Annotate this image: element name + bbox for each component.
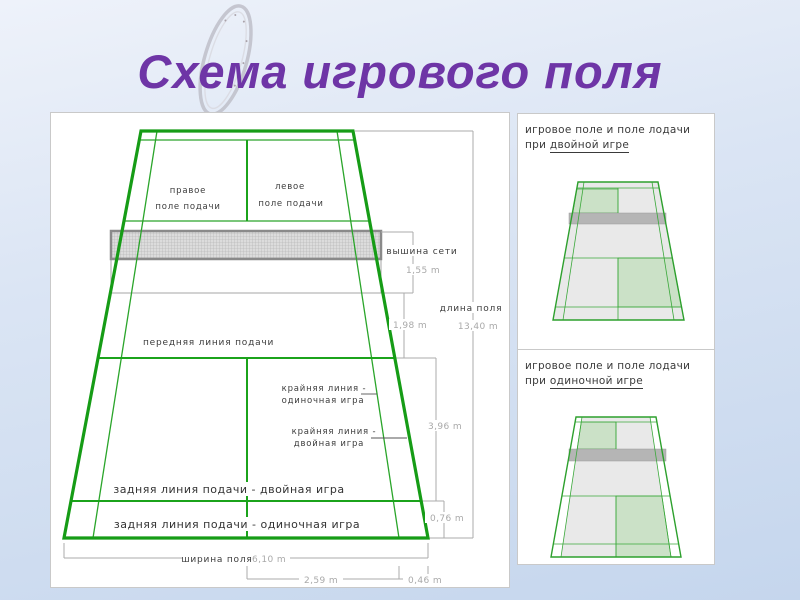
- slide-title: Схема игрового поля: [0, 44, 800, 99]
- label-field-width: ширина поля: [181, 555, 252, 565]
- label-field-length: длина поля: [440, 304, 503, 314]
- side-panel: игровое поле и поле лодачи при двойной и…: [517, 113, 715, 565]
- label-front-service-line: передняя линия подачи: [143, 338, 274, 348]
- slide: Схема игрового поля: [0, 0, 800, 600]
- badminton-court-diagram: правое поле подачи левое поле подачи пер…: [51, 113, 509, 587]
- doubles-court-mini-diagram: [518, 153, 714, 343]
- court-lines: [64, 131, 428, 538]
- label-singles-side-line-1: крайняя линия -: [282, 384, 367, 394]
- label-doubles-side-line-1: крайняя линия -: [292, 427, 377, 437]
- doubles-panel: игровое поле и поле лодачи при двойной и…: [517, 113, 715, 350]
- label-net-height: вышина сети: [386, 247, 457, 257]
- doubles-title-underlined: двойной игре: [550, 139, 629, 153]
- singles-court-mini-diagram: [518, 389, 714, 561]
- value-net-to-front: 1,98 m: [393, 321, 427, 331]
- singles-title-prefix: при: [525, 375, 550, 387]
- label-left-service-court-1: левое: [275, 182, 305, 192]
- doubles-title-line1: игровое поле и поле лодачи: [525, 124, 690, 136]
- main-diagram-panel: правое поле подачи левое поле подачи пер…: [50, 112, 510, 588]
- value-singles-inset: 0,46 m: [408, 576, 442, 586]
- dimension-labels: вышина сети 1,55 m 1,98 m длина поля 13,…: [181, 247, 502, 586]
- doubles-panel-title: игровое поле и поле лодачи при двойной и…: [518, 114, 714, 153]
- value-field-width: 6,10 m: [252, 555, 286, 565]
- net-frame: [111, 259, 381, 293]
- singles-panel: игровое поле и поле лодачи при одиночной…: [517, 349, 715, 565]
- value-half-width: 2,59 m: [304, 576, 338, 586]
- label-back-line-doubles: задняя линия подачи - двойная игра: [113, 483, 344, 496]
- label-doubles-side-line-2: двойная игра: [294, 439, 364, 449]
- label-singles-side-line-2: одиночная игра: [282, 396, 365, 406]
- mini-singles-near-service-box: [616, 496, 671, 557]
- mini-singles-far-service-box: [577, 422, 616, 449]
- mini-doubles-near-service-box: [618, 258, 682, 307]
- mini-singles-net: [569, 449, 666, 461]
- value-back-strip: 0,76 m: [430, 514, 464, 524]
- label-right-service-court-1: правое: [170, 186, 206, 196]
- doubles-title-prefix: при: [525, 139, 550, 151]
- net-band: [111, 231, 381, 259]
- mini-doubles-net: [569, 213, 666, 224]
- value-net-height: 1,55 m: [406, 266, 440, 276]
- label-back-line-singles: задняя линия подачи - одиночная игра: [114, 518, 360, 531]
- singles-panel-title: игровое поле и поле лодачи при одиночной…: [518, 350, 714, 389]
- label-right-service-court-2: поле подачи: [155, 202, 220, 212]
- singles-title-underlined: одиночной игре: [550, 375, 643, 389]
- label-backgrounds: [113, 245, 501, 586]
- label-left-service-court-2: поле подачи: [258, 199, 323, 209]
- value-service-depth: 3,96 m: [428, 422, 462, 432]
- value-field-length: 13,40 m: [458, 322, 498, 332]
- singles-title-line1: игровое поле и поле лодачи: [525, 360, 690, 372]
